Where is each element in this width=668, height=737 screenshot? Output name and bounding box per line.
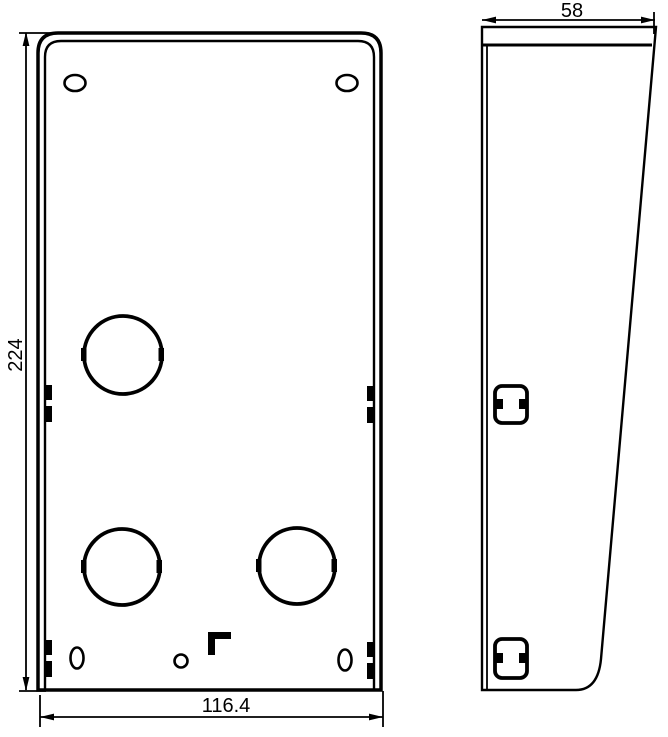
arrowhead-left: [40, 714, 54, 721]
top-right-slot-hole: [337, 75, 358, 91]
knockout-circle-lower-right: [256, 528, 337, 604]
side-view: [482, 27, 656, 690]
side-latch-cutout-bottom: [494, 639, 528, 678]
latch-notch: [519, 653, 528, 663]
technical-drawing: 224 116.4 58: [0, 0, 668, 737]
dim-width-label: 116.4: [202, 695, 251, 717]
latch-notch: [494, 653, 503, 663]
arrowhead-left: [482, 17, 496, 24]
side-latch-cutout-mid: [494, 386, 528, 423]
arrowhead-right: [641, 17, 655, 24]
drawing-canvas: 224 116.4 58: [0, 0, 668, 737]
knockout-tab: [159, 348, 165, 361]
corner-orientation-mark: [208, 632, 231, 655]
knockout-tab: [256, 559, 262, 572]
knockout-tab: [81, 348, 87, 361]
side-outline: [482, 27, 656, 690]
dimension-height: 224: [5, 32, 58, 691]
bottom-left-slot-hole: [71, 648, 84, 669]
dim-depth-label: 58: [561, 0, 583, 22]
knockout-tab: [81, 560, 87, 573]
knockout-circle-upper: [81, 316, 164, 394]
dimension-depth: 58: [482, 0, 655, 34]
arrowhead-down: [23, 677, 30, 691]
knockout-tab: [332, 559, 338, 572]
top-left-slot-hole: [65, 75, 86, 91]
dim-height-label: 224: [5, 338, 27, 371]
knockout-tab: [157, 560, 163, 573]
dimension-width: 116.4: [40, 691, 383, 727]
latch-notch: [494, 399, 503, 409]
front-outer-outline: [38, 33, 381, 690]
latch-notch: [519, 399, 528, 409]
arrowhead-right: [369, 714, 383, 721]
arrowhead-up: [23, 32, 30, 46]
bottom-right-slot-hole: [339, 650, 352, 671]
front-view: [38, 33, 381, 690]
knockout-circle-lower-left: [81, 529, 162, 605]
small-pilot-hole: [175, 655, 188, 668]
